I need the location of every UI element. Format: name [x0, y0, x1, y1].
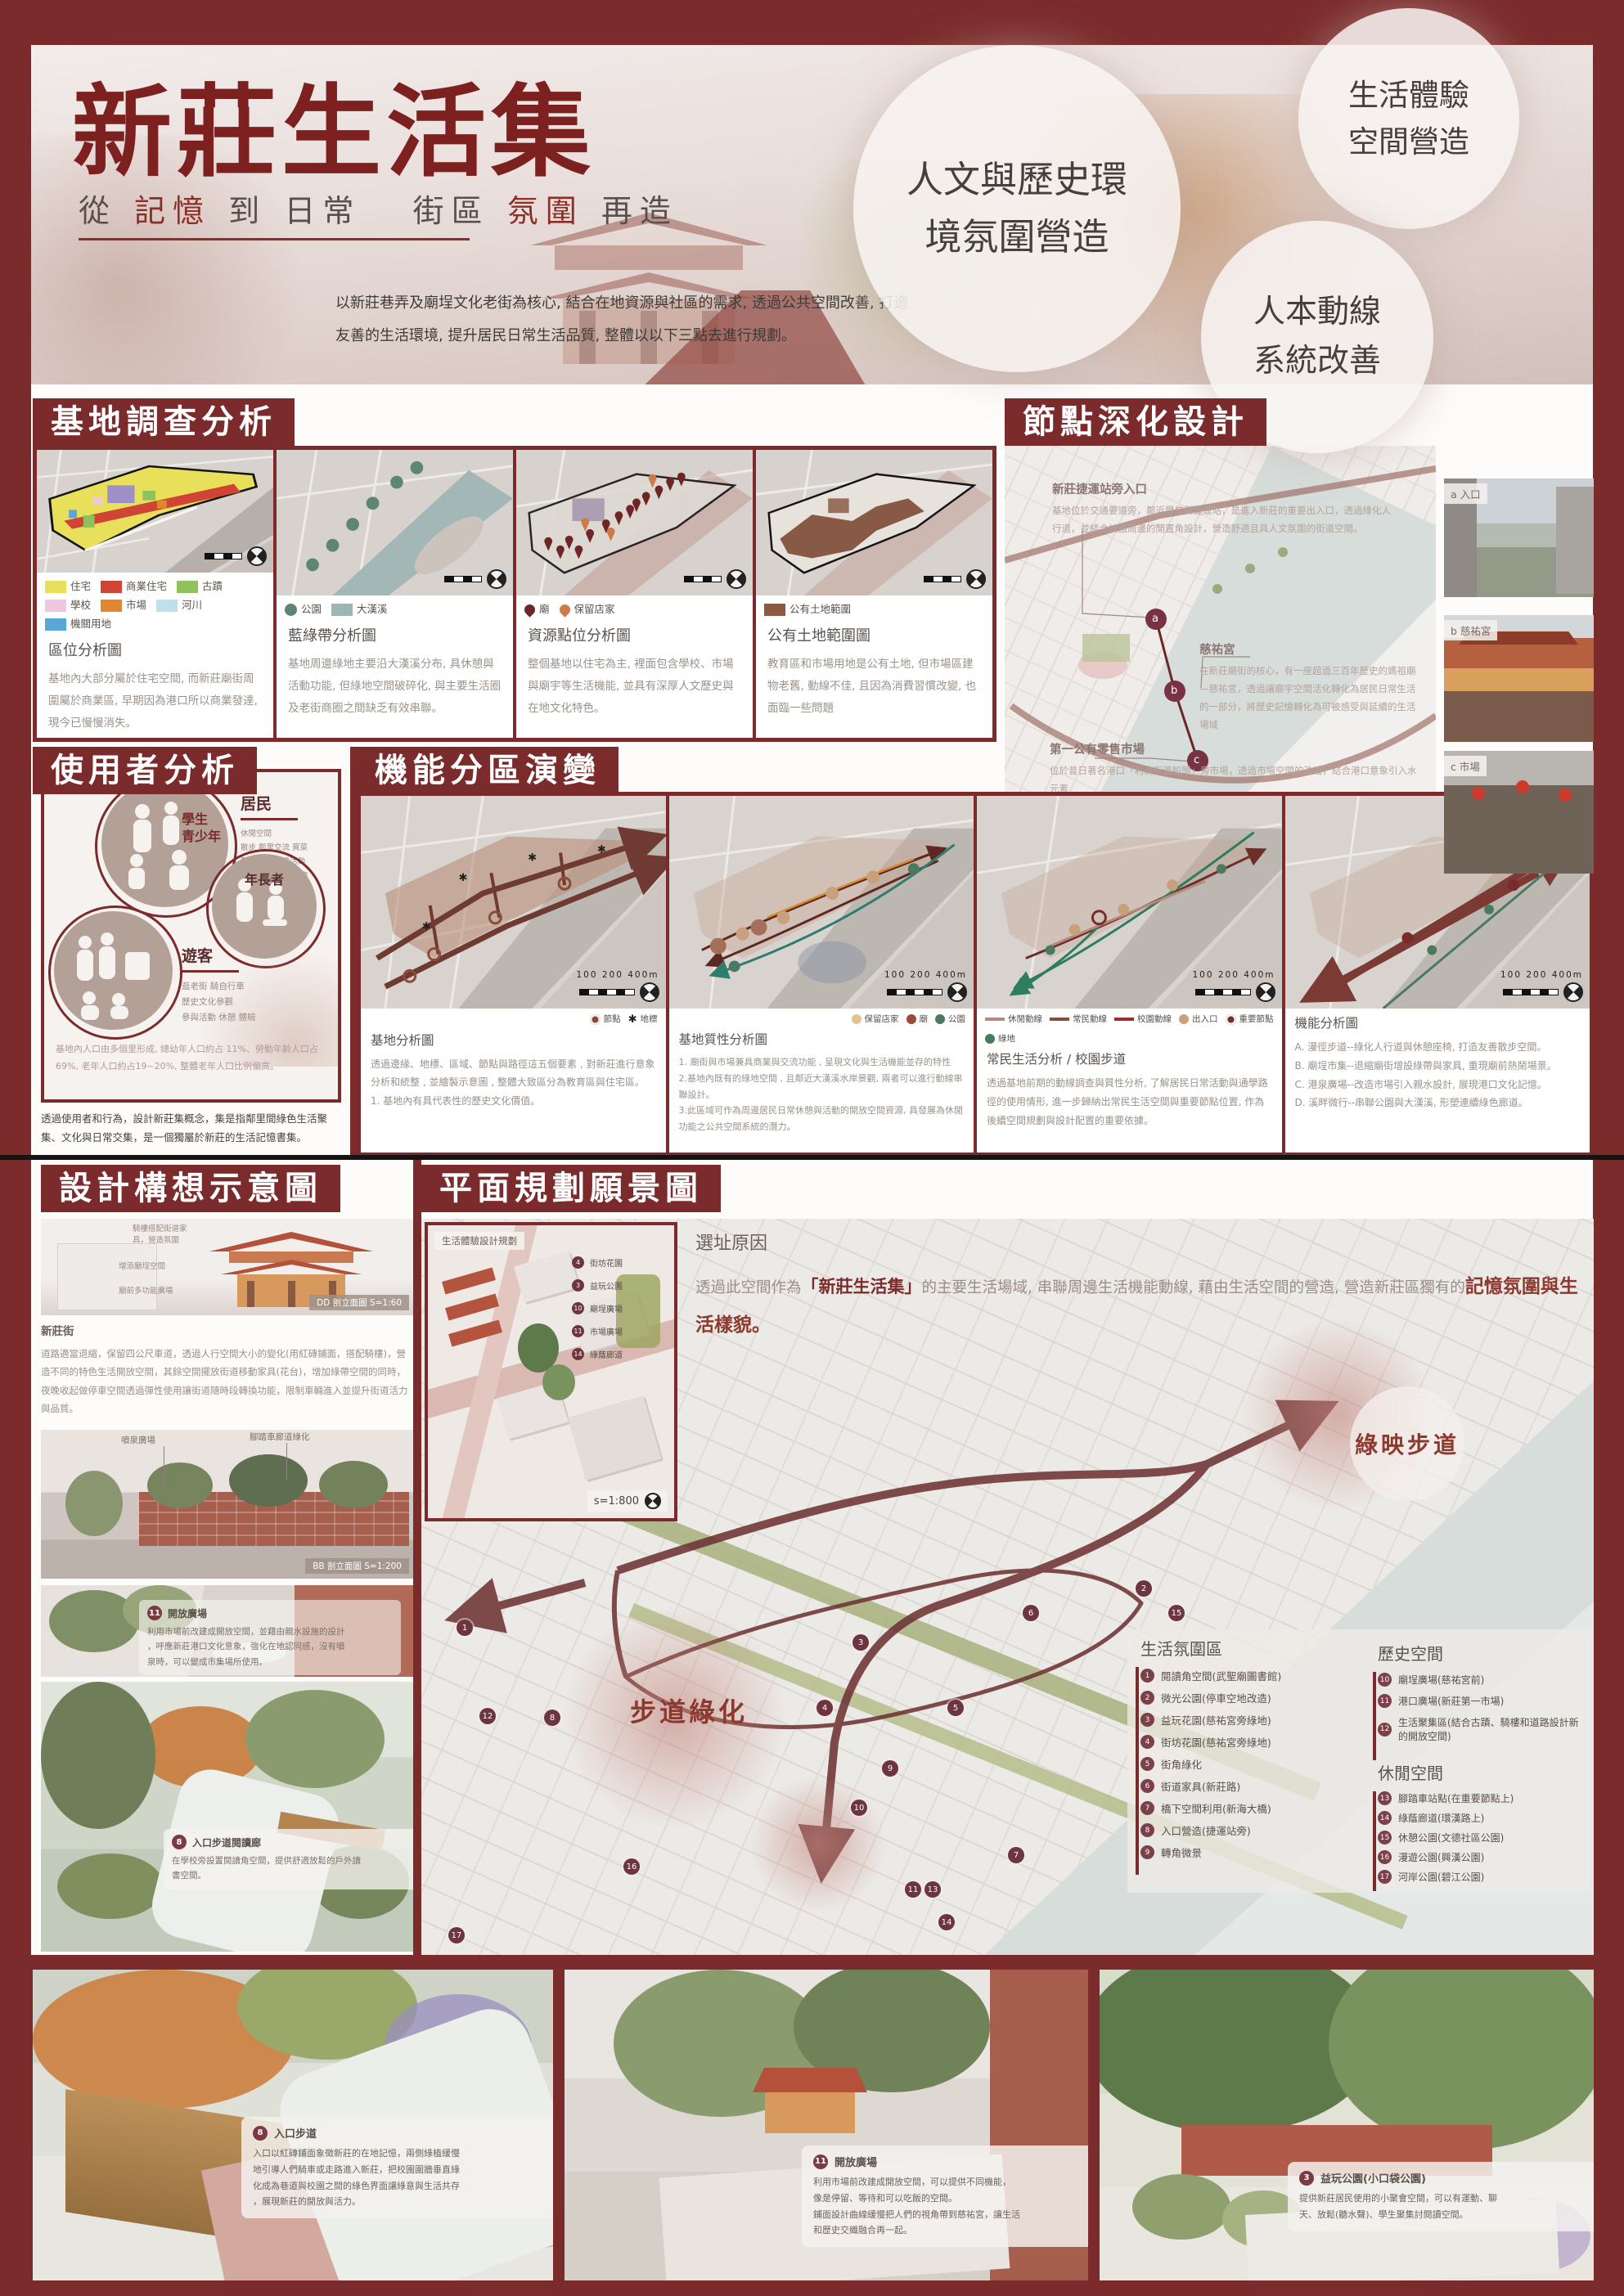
scalebar-icon — [1195, 989, 1251, 995]
bb-annotation-1: 噴泉廣場 — [121, 1435, 155, 1448]
entry-path-caption: 8入口步道 入口以紅磚鋪面象徵新莊的在地記憶，兩側綠植緩慢 地引導人們騎車或走路… — [241, 2117, 553, 2218]
legend-label: 節點 — [604, 1014, 621, 1024]
legend-group-title: 生活氛圍區 — [1140, 1636, 1356, 1660]
annotation-body: 在新莊廟街的核心，有一座超過三百年歷史的媽祖廟—慈祐宮，透過讓廟宇空間活化轉化為… — [1199, 663, 1424, 734]
subtitle-part: 日常 — [284, 193, 361, 229]
temple-dot-icon — [906, 1014, 916, 1024]
compass-icon — [1256, 982, 1275, 1002]
legend-item: 校園動線 — [1114, 1013, 1172, 1025]
xinzhuang-street-text: 新莊街 道路適當退縮，保留四公尺車道，透過人行空間大小的變化(用紅磚鋪面，搭配騎… — [41, 1322, 414, 1418]
zoning-map-base: ✱✱✱✱ 100 200 400m — [361, 796, 666, 1009]
plan-node-15: 15 — [1168, 1605, 1185, 1621]
photo-market: c 市場 — [1444, 751, 1594, 874]
inset-item-list: 4街坊花園 3益玩公園 10廟埕廣場 11市場廣場 14綠蔭廊道 — [572, 1256, 623, 1360]
reason-seg1: 透過此空間作為 — [695, 1279, 802, 1296]
legend-item: 學校 — [45, 596, 91, 612]
hero-banner: 新莊生活集 從 記憶 到 日常 街區 氛圍 再造 以新莊巷弄及廟埕文化老街為核心… — [31, 45, 1593, 384]
legend-item: 重要節點 — [1226, 1013, 1274, 1025]
map-caption-text: 基地內大部分屬於住宅空間, 而新莊廟街周圍屬於商業區, 早期因為港口所以商業發達… — [48, 668, 262, 735]
legend-text: 河岸公園(碧江公園) — [1398, 1870, 1484, 1884]
legend-text: 廟埕廣場(慈祐宮前) — [1398, 1673, 1484, 1687]
legend-group-history: 歷史空間 10廟埕廣場(慈祐宮前) 11港口廣場(新莊第一市場) 12生活聚集區… — [1378, 1641, 1584, 1743]
zoning-caption-4: 機能分析圖 A. 漫徑步道--綠化人行道與休憩座椅, 打造友善散步空間。 B. … — [1285, 1009, 1590, 1114]
river-swatch-icon — [331, 604, 353, 616]
caption-publicland: 公有土地範圍圖 教育區和市場用地是公有土地, 但市場區建物老舊, 動線不佳, 且… — [756, 618, 992, 723]
zoning-map-text: A. 漫徑步道--綠化人行道與休憩座椅, 打造友善散步空間。 B. 廟埕市集--… — [1295, 1038, 1581, 1112]
legend-number: 17 — [1378, 1870, 1392, 1884]
zoning-col-3: 100 200 400m 休閒動線 常民動線 校園動線 出入口 重要節點 綠地 … — [977, 796, 1285, 1152]
inset-item-number: 3 — [572, 1279, 584, 1292]
legend-label: 綠地 — [998, 1034, 1015, 1044]
scalebar-icon — [579, 989, 635, 995]
plan-node-2: 2 — [1136, 1580, 1152, 1597]
inset-item-number: 4 — [572, 1256, 584, 1269]
annotation-heading: 第一公有零售市場 — [1050, 740, 1418, 757]
plaza-render: 11開放廣場 利用市場前改建成開放空間，並藉由親水設施的設計 ，呼應新莊港口文化… — [41, 1585, 414, 1677]
legend-publicland: 公有土地範圍 — [756, 595, 992, 618]
annotation-body: 基地位於交通要道旁，鄰近學校與捷運站，是進入新莊的重要出入口，透過綠化人 行道，… — [1052, 502, 1422, 538]
caption-resources: 資源點位分析圖 整個基地以住宅為主, 裡面包含學校、市場與廟宇等生活機能, 並具… — [516, 618, 753, 723]
entry-heading: 入口步道閱讀廊 — [192, 1835, 261, 1849]
legend-entry: 8入口營造(捷運站旁) — [1140, 1822, 1356, 1838]
subtitle-part: 到 — [228, 193, 267, 229]
plan-node-1: 1 — [457, 1620, 473, 1636]
compass-icon — [1563, 982, 1583, 1002]
legend-number: 4 — [1140, 1735, 1154, 1749]
legend-bluegreen: 公園 大漢溪 — [277, 595, 513, 618]
shop-dot-icon — [852, 1014, 861, 1024]
life-experience-inset: 生活體驗設計規劃 4街坊花園 3益玩公園 10廟埕廣場 11市場廣場 14綠蔭廊… — [425, 1222, 677, 1521]
plan-node-7: 7 — [1008, 1847, 1024, 1863]
map-scale-group: 100 200 400m — [884, 970, 967, 1002]
annotation-mrt-entrance: 新莊捷運站旁入口 基地位於交通要道旁，鄰近學校與捷運站，是進入新莊的重要出入口，… — [1052, 480, 1422, 538]
map-caption-text: 基地周邊綠地主要沿大漢溪分布, 具休憩與活動功能, 但綠地空間破碎化, 與主要生… — [288, 654, 502, 720]
zoning-map-daily-life: 100 200 400m — [977, 796, 1282, 1009]
legend-label: 機關用地 — [70, 618, 111, 630]
legend-item: 河川 — [156, 596, 202, 612]
subtitle-underline — [79, 238, 470, 240]
map-caption-text: 教育區和市場用地是公有土地, 但市場區建物老舊, 動線不佳, 且因為消費習慣改變… — [767, 654, 981, 720]
caption-body: 提供新莊居民使用的小聚會空間，可以有運動、聊 天、放鬆(聽水聲)、學生聚集討閱讀… — [1299, 2190, 1590, 2223]
section-title-site-survey: 基地調查分析 — [33, 398, 295, 446]
poster-subtitle: 從 記憶 到 日常 街區 氛圍 再造 — [79, 186, 678, 231]
node-number-badge: 3 — [1299, 2171, 1314, 2186]
legend-text: 閱讀角空間(武聖廟圖書館) — [1161, 1668, 1281, 1683]
map-caption-title: 藍綠帶分析圖 — [288, 624, 502, 645]
node-number-badge: 11 — [813, 2154, 828, 2169]
vertical-divider — [350, 747, 357, 1156]
daily-line-icon — [1050, 1018, 1069, 1021]
map-scalebar — [924, 569, 986, 589]
legend-text: 轉角微景 — [1161, 1844, 1202, 1860]
tree-blob — [41, 1682, 155, 1829]
legend-label: 廟 — [539, 603, 550, 615]
temple-shape — [753, 2068, 867, 2092]
section-title-design-concepts: 設計構想示意圖 — [41, 1165, 340, 1212]
inset-temple-roof — [445, 1293, 499, 1320]
side-building-shape — [57, 1243, 157, 1310]
plan-node-8: 8 — [544, 1710, 560, 1726]
legend-number: 7 — [1140, 1801, 1154, 1815]
reason-seg2: 的主要生活場域, 串聯周邊生活機能動線, 藉由生活空間的營造, 營造新莊區獨有的 — [922, 1279, 1465, 1296]
scalebar-icon — [205, 553, 242, 559]
zoning-map-text: 透過基地前期的動線調查與質性分析, 了解居民日常活動與通學路徑的使用情形, 進一… — [987, 1074, 1272, 1130]
legend-text: 微光公園(停車空地改造) — [1161, 1690, 1271, 1705]
map-label-greenway: 綠映步道 — [1355, 1427, 1460, 1460]
node-design-map: a b c 新莊捷運站旁入口 基地位於交通要道旁，鄰近學校與捷運站，是進入新莊的… — [1005, 446, 1436, 811]
institution-swatch-icon — [45, 618, 66, 631]
legend-item: 廟 — [524, 600, 550, 616]
map-scale-group: 100 200 400m — [1192, 970, 1275, 1002]
tree-blob — [245, 1690, 385, 1788]
inset-item-label: 廟埕廣場 — [590, 1302, 623, 1314]
legend-text: 生活聚集區(結合古蹟、騎樓和道路設計新的開放空間) — [1398, 1715, 1584, 1743]
legend-item: 節點 — [590, 1013, 621, 1025]
plan-node-6: 6 — [1023, 1605, 1039, 1621]
temple-body-shape — [765, 2092, 855, 2133]
legend-location: 住宅 商業住宅 古蹟 學校 市場 河川 機關用地 — [37, 573, 273, 632]
greenway-label-circle: 綠映步道 — [1350, 1386, 1464, 1501]
site-survey-col-resources: 廟 保留店家 資源點位分析圖 整個基地以住宅為主, 裡面包含學校、市場與廟宇等生… — [516, 450, 756, 738]
legend-text: 益玩花園(慈祐宮旁綠地) — [1161, 1712, 1271, 1728]
zoning-col-1: ✱✱✱✱ 100 200 400m 節點 ✱地標 基地分析圖 透過邊緣、地標、區… — [361, 796, 669, 1152]
route-node-b: b — [1171, 685, 1177, 697]
legend-label: 校園動線 — [1137, 1014, 1172, 1024]
zoning-map-title: 基地分析圖 — [371, 1031, 656, 1049]
scale-text: 100 200 400m — [1500, 970, 1583, 980]
bush-blob — [1132, 2174, 1230, 2240]
residents-title: 居民 — [241, 795, 272, 813]
map-scale-group: 100 200 400m — [576, 970, 659, 1002]
poster-title: 新莊生活集 — [72, 52, 596, 196]
inset-scale-chip: s=1:800 — [587, 1490, 668, 1512]
park-dot-icon — [285, 604, 297, 616]
leader-line — [164, 1446, 164, 1487]
map-scalebar — [444, 569, 506, 589]
scalebar-icon — [1503, 989, 1559, 995]
inset-item-number: 11 — [572, 1325, 584, 1337]
zoning-map-title: 基地質性分析圖 — [679, 1030, 965, 1048]
legend-entry: 6街道家具(新莊路) — [1140, 1778, 1356, 1794]
canopy-blob — [1329, 1970, 1594, 2150]
market-swatch-icon — [101, 600, 122, 612]
building-shape — [1556, 487, 1594, 594]
legend-label: 廟 — [920, 1014, 929, 1024]
legend-entry: 13腳踏車站點(在重要節點上) — [1378, 1791, 1584, 1805]
tree-blob — [147, 1463, 213, 1508]
legend-label: 公有土地範圍 — [790, 603, 851, 615]
street-heading: 新莊街 — [41, 1322, 414, 1338]
section-title-node-design: 節點深化設計 — [1005, 398, 1266, 446]
render-pocket-park: 3益玩公園(小口袋公園) 提供新莊居民使用的小聚會空間，可以有運動、聊 天、放鬆… — [1100, 1970, 1594, 2280]
plan-node-3: 3 — [852, 1634, 869, 1651]
scalebar-icon — [887, 989, 942, 995]
legend-text: 街角綠化 — [1161, 1756, 1202, 1772]
legend-group-title: 歷史空間 — [1378, 1641, 1584, 1665]
route-node-a: a — [1152, 613, 1158, 625]
scale-text: 100 200 400m — [884, 970, 967, 980]
legend-item: 廟 — [906, 1013, 929, 1025]
compass-icon — [247, 546, 267, 566]
subtitle-part: 再造 — [601, 193, 678, 229]
map-caption-text: 整個基地以住宅為主, 裡面包含學校、市場與廟宇等生活機能, 並具有深厚人文歷史與… — [528, 654, 741, 720]
label-elder: 年長者 — [245, 872, 284, 889]
legend-label: 市場 — [126, 599, 146, 611]
photo-ciyou-temple: b 慈祐宮 — [1444, 615, 1594, 742]
caption-heading: 開放廣場 — [834, 2154, 877, 2169]
legend-item: 公園 — [935, 1013, 965, 1025]
legend-entry: 16漫遊公園(興漢公園) — [1378, 1850, 1584, 1864]
map-caption-title: 資源點位分析圖 — [528, 624, 741, 645]
legend-entry: 1閱讀角空間(武聖廟圖書館) — [1140, 1668, 1356, 1683]
tree-blob — [65, 1471, 123, 1536]
zoning-map-text: 透過邊緣、地標、區域、節點與路徑這五個要素 , 對新莊進行意象分析和統整 , 並… — [371, 1055, 656, 1111]
annotation-ciyou-temple: 慈祐宮 在新莊廟街的核心，有一座超過三百年歷史的媽祖廟—慈祐宮，透過讓廟宇空間活… — [1199, 640, 1424, 734]
legend-label: 公園 — [948, 1014, 965, 1024]
legend-label: 住宅 — [70, 580, 91, 592]
shop-pin-icon — [557, 602, 572, 617]
visitor-silhouettes-icon — [65, 928, 163, 1026]
plan-node-9: 9 — [882, 1760, 898, 1777]
legend-label: 大漢溪 — [357, 603, 388, 615]
section-tag-dd: DD 剖立面圖 S=1:60 — [309, 1295, 409, 1310]
legend-number: 2 — [1140, 1691, 1154, 1705]
photo-entrance: a 入口 — [1444, 479, 1594, 597]
section-title-zoning: 機能分區演變 — [357, 747, 619, 794]
vertical-divider — [413, 1160, 421, 1955]
plaza-body: 利用市場前改建成開放空間，並藉由親水設施的設計 ，呼應新莊港口文化意象，強化在地… — [147, 1624, 393, 1669]
node-ring-icon — [590, 1014, 601, 1025]
plan-node-14: 14 — [938, 1914, 955, 1930]
legend-label: 保留店家 — [574, 603, 615, 615]
scale-text: 100 200 400m — [576, 970, 659, 980]
plan-node-17: 17 — [448, 1927, 465, 1943]
annotation-heading: 慈祐宮 — [1199, 640, 1424, 658]
inset-item: 4街坊花園 — [572, 1256, 623, 1269]
elevation-annotation-1: 騎樓搭配街道家 具，營造氛圍 — [133, 1224, 187, 1247]
badge-life-experience: 生活體驗 空間營造 — [1298, 8, 1519, 229]
legend-entry: 3益玩花園(慈祐宮旁綠地) — [1140, 1712, 1356, 1728]
section-divider-line — [0, 1155, 1624, 1160]
zoning-map-title: 機能分析圖 — [1295, 1013, 1581, 1031]
subtitle-keyword: 氛圍 — [507, 193, 584, 229]
svg-text:✱: ✱ — [528, 851, 537, 864]
population-stats: 基地內人口由多個里形成, 總幼年人口約占 11%、勞動年齡人口占69%, 老年人… — [56, 1040, 331, 1076]
bush-blob — [57, 1853, 164, 1919]
map-caption-title: 公有土地範圍圖 — [767, 624, 981, 645]
legend-item: 休閒動線 — [985, 1013, 1042, 1025]
school-swatch-icon — [45, 600, 66, 612]
legend-label: 公園 — [301, 603, 322, 615]
green-dot-icon — [985, 1034, 995, 1044]
caption-bluegreen: 藍綠帶分析圖 基地周邊綠地主要沿大漢溪分布, 具休憩與活動功能, 但綠地空間破碎… — [277, 618, 513, 723]
plan-node-16: 16 — [623, 1858, 640, 1875]
inset-item-label: 市場廣場 — [590, 1325, 623, 1337]
zoning-caption-3: 常民生活分析 / 校園步道 透過基地前期的動線調查與質性分析, 了解居民日常活動… — [977, 1045, 1282, 1131]
elevation-annotation-2: 增添廟埕空間 — [119, 1261, 165, 1273]
caption-body: 利用市場前改建成開放空間，可以提供不同機能， 像是停留、等待和可以吃飯的空間。 … — [813, 2174, 1088, 2239]
zoning-caption-1: 基地分析圖 透過邊緣、地標、區域、節點與路徑這五個要素 , 對新莊進行意象分析和… — [361, 1026, 666, 1112]
render-entry-path: 8入口步道 入口以紅磚鋪面象徵新莊的在地記憶，兩側綠植緩慢 地引導人們騎車或走路… — [33, 1970, 553, 2280]
residential-swatch-icon — [45, 581, 66, 593]
inset-green-blob — [616, 1274, 660, 1348]
caption-body: 入口以紅磚鋪面象徵新莊的在地記憶，兩側綠植緩慢 地引導人們騎車或走路進入新莊，把… — [253, 2145, 553, 2210]
legend-entry: 9轉角微景 — [1140, 1844, 1356, 1860]
concept-statement: 透過使用者和行為，設計新莊集概念，集是指鄰里間綠色生活聚集、文化與日常交集，是一… — [41, 1109, 347, 1147]
legend-number: 3 — [1140, 1713, 1154, 1727]
site-survey-col-location: 住宅 商業住宅 古蹟 學校 市場 河川 機關用地 區位分析圖 基地內大部分屬於住… — [37, 450, 277, 738]
plan-node-5: 5 — [947, 1700, 964, 1716]
legend-item: ✱地標 — [628, 1013, 658, 1026]
inset-temple-roof — [442, 1267, 496, 1294]
legend-label: 河川 — [182, 599, 202, 611]
render-open-plaza: 11開放廣場 利用市場前改建成開放空間，可以提供不同機能， 像是停留、等待和可以… — [565, 1970, 1088, 2280]
legend-number: 15 — [1378, 1831, 1392, 1844]
lantern-icon — [1472, 787, 1485, 800]
legend-number: 9 — [1140, 1845, 1154, 1859]
label-students: 學生 青少年 — [182, 811, 221, 846]
site-selection-reason: 選址原因 透過此空間作為「新莊生活集」的主要生活場域, 串聯周邊生活機能動線, … — [695, 1229, 1579, 1345]
section-tag-bb: BB 剖立面圖 S=1:200 — [305, 1558, 409, 1574]
legend-label: 商業住宅 — [126, 580, 167, 592]
legend-label: 休閒動線 — [1008, 1014, 1042, 1024]
residents-underline — [241, 818, 298, 820]
leader-line — [286, 1443, 287, 1480]
legend-text: 港口廣場(新莊第一市場) — [1398, 1694, 1504, 1708]
legend-item: 出入口 — [1179, 1013, 1218, 1025]
legend-group-life: 生活氛圍區 1閱讀角空間(武聖廟圖書館) 2微光公園(停車空地改造) 3益玩花園… — [1140, 1636, 1356, 1860]
inset-scale-text: s=1:800 — [594, 1495, 639, 1507]
site-survey-col-publicland: 公有土地範圍 公有土地範圍圖 教育區和市場用地是公有土地, 但市場區建物老舊, … — [756, 450, 992, 738]
landmark-star-icon: ✱ — [628, 1013, 637, 1026]
legend-entry: 17河岸公園(碧江公園) — [1378, 1870, 1584, 1884]
caption-heading: 益玩公園(小口袋公園) — [1320, 2170, 1426, 2186]
legend-text: 橋下空間利用(新海大橋) — [1161, 1800, 1271, 1816]
subtitle-spacer — [378, 193, 395, 229]
legend-entry: 12生活聚集區(結合古蹟、騎樓和道路設計新的開放空間) — [1378, 1715, 1584, 1743]
photo-label-b: b 慈祐宮 — [1444, 620, 1497, 640]
inset-building-block — [568, 1395, 661, 1480]
leisure-line-icon — [985, 1018, 1005, 1021]
inset-item: 11市場廣場 — [572, 1325, 623, 1337]
temple-pin-icon — [522, 602, 537, 617]
zoning-map-quality: 100 200 400m — [669, 796, 974, 1009]
inset-item-label: 街坊花園 — [590, 1256, 623, 1269]
legend-label: 常民動線 — [1073, 1014, 1107, 1024]
legend-resources: 廟 保留店家 — [516, 595, 753, 618]
legend-item: 大漢溪 — [331, 600, 388, 616]
zoning-map-text: 1. 廟街與市場兼具商業與交流功能 , 呈現文化與生活機能並存的特性 2.基地內… — [679, 1054, 965, 1135]
map-scalebar — [205, 546, 267, 566]
zoning-caption-2: 基地質性分析圖 1. 廟街與市場兼具商業與交流功能 , 呈現文化與生活機能並存的… — [669, 1025, 974, 1137]
tree-blob — [229, 1454, 308, 1507]
subtitle-keyword: 記憶 — [134, 193, 211, 229]
inset-item: 14綠蔭廊道 — [572, 1348, 623, 1360]
legend-number: 1 — [1140, 1669, 1154, 1683]
legend-text: 綠蔭廊道(環漢路上) — [1398, 1811, 1484, 1825]
highlight-glow — [749, 1775, 888, 1914]
zoning-legend-2: 保留店家 廟 公園 — [669, 1009, 974, 1025]
map-caption-title: 區位分析圖 — [48, 639, 262, 660]
legend-number: 12 — [1378, 1723, 1392, 1737]
bb-annotation-2: 腳踏車廊道綠化 — [250, 1431, 310, 1445]
inset-tree-blob — [542, 1364, 575, 1400]
scalebar-icon — [924, 576, 961, 582]
plan-node-4: 4 — [816, 1700, 833, 1716]
plan-node-13: 13 — [924, 1881, 941, 1898]
legend-label: 出入口 — [1192, 1014, 1218, 1024]
campus-line-icon — [1114, 1018, 1134, 1021]
legend-entry: 5街角綠化 — [1140, 1756, 1356, 1772]
compass-icon — [487, 569, 506, 589]
legend-item: 保留店家 — [852, 1013, 899, 1025]
caption-location: 區位分析圖 基地內大部分屬於住宅空間, 而新莊廟街周圍屬於商業區, 早期因為港口… — [37, 632, 273, 738]
inset-item: 3益玩公園 — [572, 1279, 623, 1292]
legend-entry: 11港口廣場(新莊第一市場) — [1378, 1694, 1584, 1708]
legend-label: 古蹟 — [202, 580, 223, 592]
svg-text:✱: ✱ — [459, 872, 468, 884]
legend-label: 學校 — [70, 599, 91, 611]
legend-entry: 7橋下空間利用(新海大橋) — [1140, 1800, 1356, 1816]
location-analysis-map — [37, 450, 273, 573]
plaza-caption: 11開放廣場 利用市場前改建成開放空間，並藉由親水設施的設計 ，呼應新莊港口文化… — [139, 1600, 401, 1675]
caption-heading: 入口步道 — [274, 2125, 317, 2141]
zoning-map-title: 常民生活分析 / 校園步道 — [987, 1049, 1272, 1067]
user-analysis-box: 學生 青少年 居民 休閒空間 散步 鄰里交流 買菜 聚集空間 日常活動 休憩 騎… — [41, 769, 341, 1103]
tree-blob — [319, 1461, 388, 1508]
section-title-master-plan: 平面規劃願景圖 — [421, 1165, 721, 1212]
scalebar-icon — [444, 576, 482, 582]
legend-text: 街坊花園(慈祐宮旁綠地) — [1161, 1734, 1271, 1750]
legend-text: 入口營造(捷運站旁) — [1161, 1822, 1251, 1838]
node-number-badge: 8 — [253, 2126, 268, 2141]
legend-number: 8 — [1140, 1823, 1154, 1837]
legend-item: 公有土地範圍 — [764, 600, 851, 616]
legend-bar — [1373, 1672, 1376, 1760]
publicland-swatch-icon — [764, 604, 785, 616]
inset-title-chip: 生活體驗設計規劃 — [434, 1232, 524, 1250]
photo-label-a: a 入口 — [1444, 483, 1487, 504]
zoning-col-2: 100 200 400m 保留店家 廟 公園 基地質性分析圖 1. 廟街與市場兼… — [669, 796, 978, 1152]
legend-number: 5 — [1140, 1757, 1154, 1771]
park-dot-icon — [935, 1014, 945, 1024]
master-plan-legend: 生活氛圍區 1閱讀角空間(武聖廟圖書館) 2微光公園(停車空地改造) 3益玩花園… — [1127, 1629, 1590, 1893]
bluegreen-analysis-map — [277, 450, 513, 595]
legend-item: 住宅 — [45, 577, 91, 593]
legend-number: 6 — [1140, 1779, 1154, 1793]
plan-node-10: 10 — [851, 1800, 867, 1816]
subtitle-part: 街區 — [413, 193, 490, 229]
legend-group-title: 休閒空間 — [1378, 1760, 1584, 1784]
legend-number: 11 — [1378, 1694, 1392, 1708]
elevation-annotation-3: 廟前多功能廣場 — [119, 1286, 173, 1297]
compass-icon — [966, 569, 986, 589]
legend-label: 地標 — [641, 1014, 658, 1024]
legend-entry: 2微光公園(停車空地改造) — [1140, 1690, 1356, 1705]
heritage-swatch-icon — [177, 581, 198, 593]
street-body: 道路適當退縮，保留四公尺車道，透過人行空間大小的變化(用紅磚鋪面，搭配騎樓)，營… — [41, 1345, 414, 1418]
horizontal-band — [31, 1955, 1593, 1970]
plaza-heading: 開放廣場 — [168, 1606, 207, 1620]
inset-item-number: 14 — [572, 1348, 584, 1360]
reason-body: 透過此空間作為「新莊生活集」的主要生活場域, 串聯周邊生活機能動線, 藉由生活空… — [695, 1268, 1579, 1345]
zoning-legend-1: 節點 ✱地標 — [361, 1009, 666, 1026]
poster: 新莊生活集 從 記憶 到 日常 街區 氛圍 再造 以新莊巷弄及廟埕文化老街為核心… — [0, 0, 1624, 2296]
legend-bar — [1373, 1791, 1376, 1891]
commercial-swatch-icon — [101, 581, 122, 593]
entrance-dot-icon — [1179, 1014, 1189, 1024]
site-survey-col-bluegreen: 公園 大漢溪 藍綠帶分析圖 基地周邊綠地主要沿大漢溪分布, 具休憩與活動功能, … — [277, 450, 516, 738]
